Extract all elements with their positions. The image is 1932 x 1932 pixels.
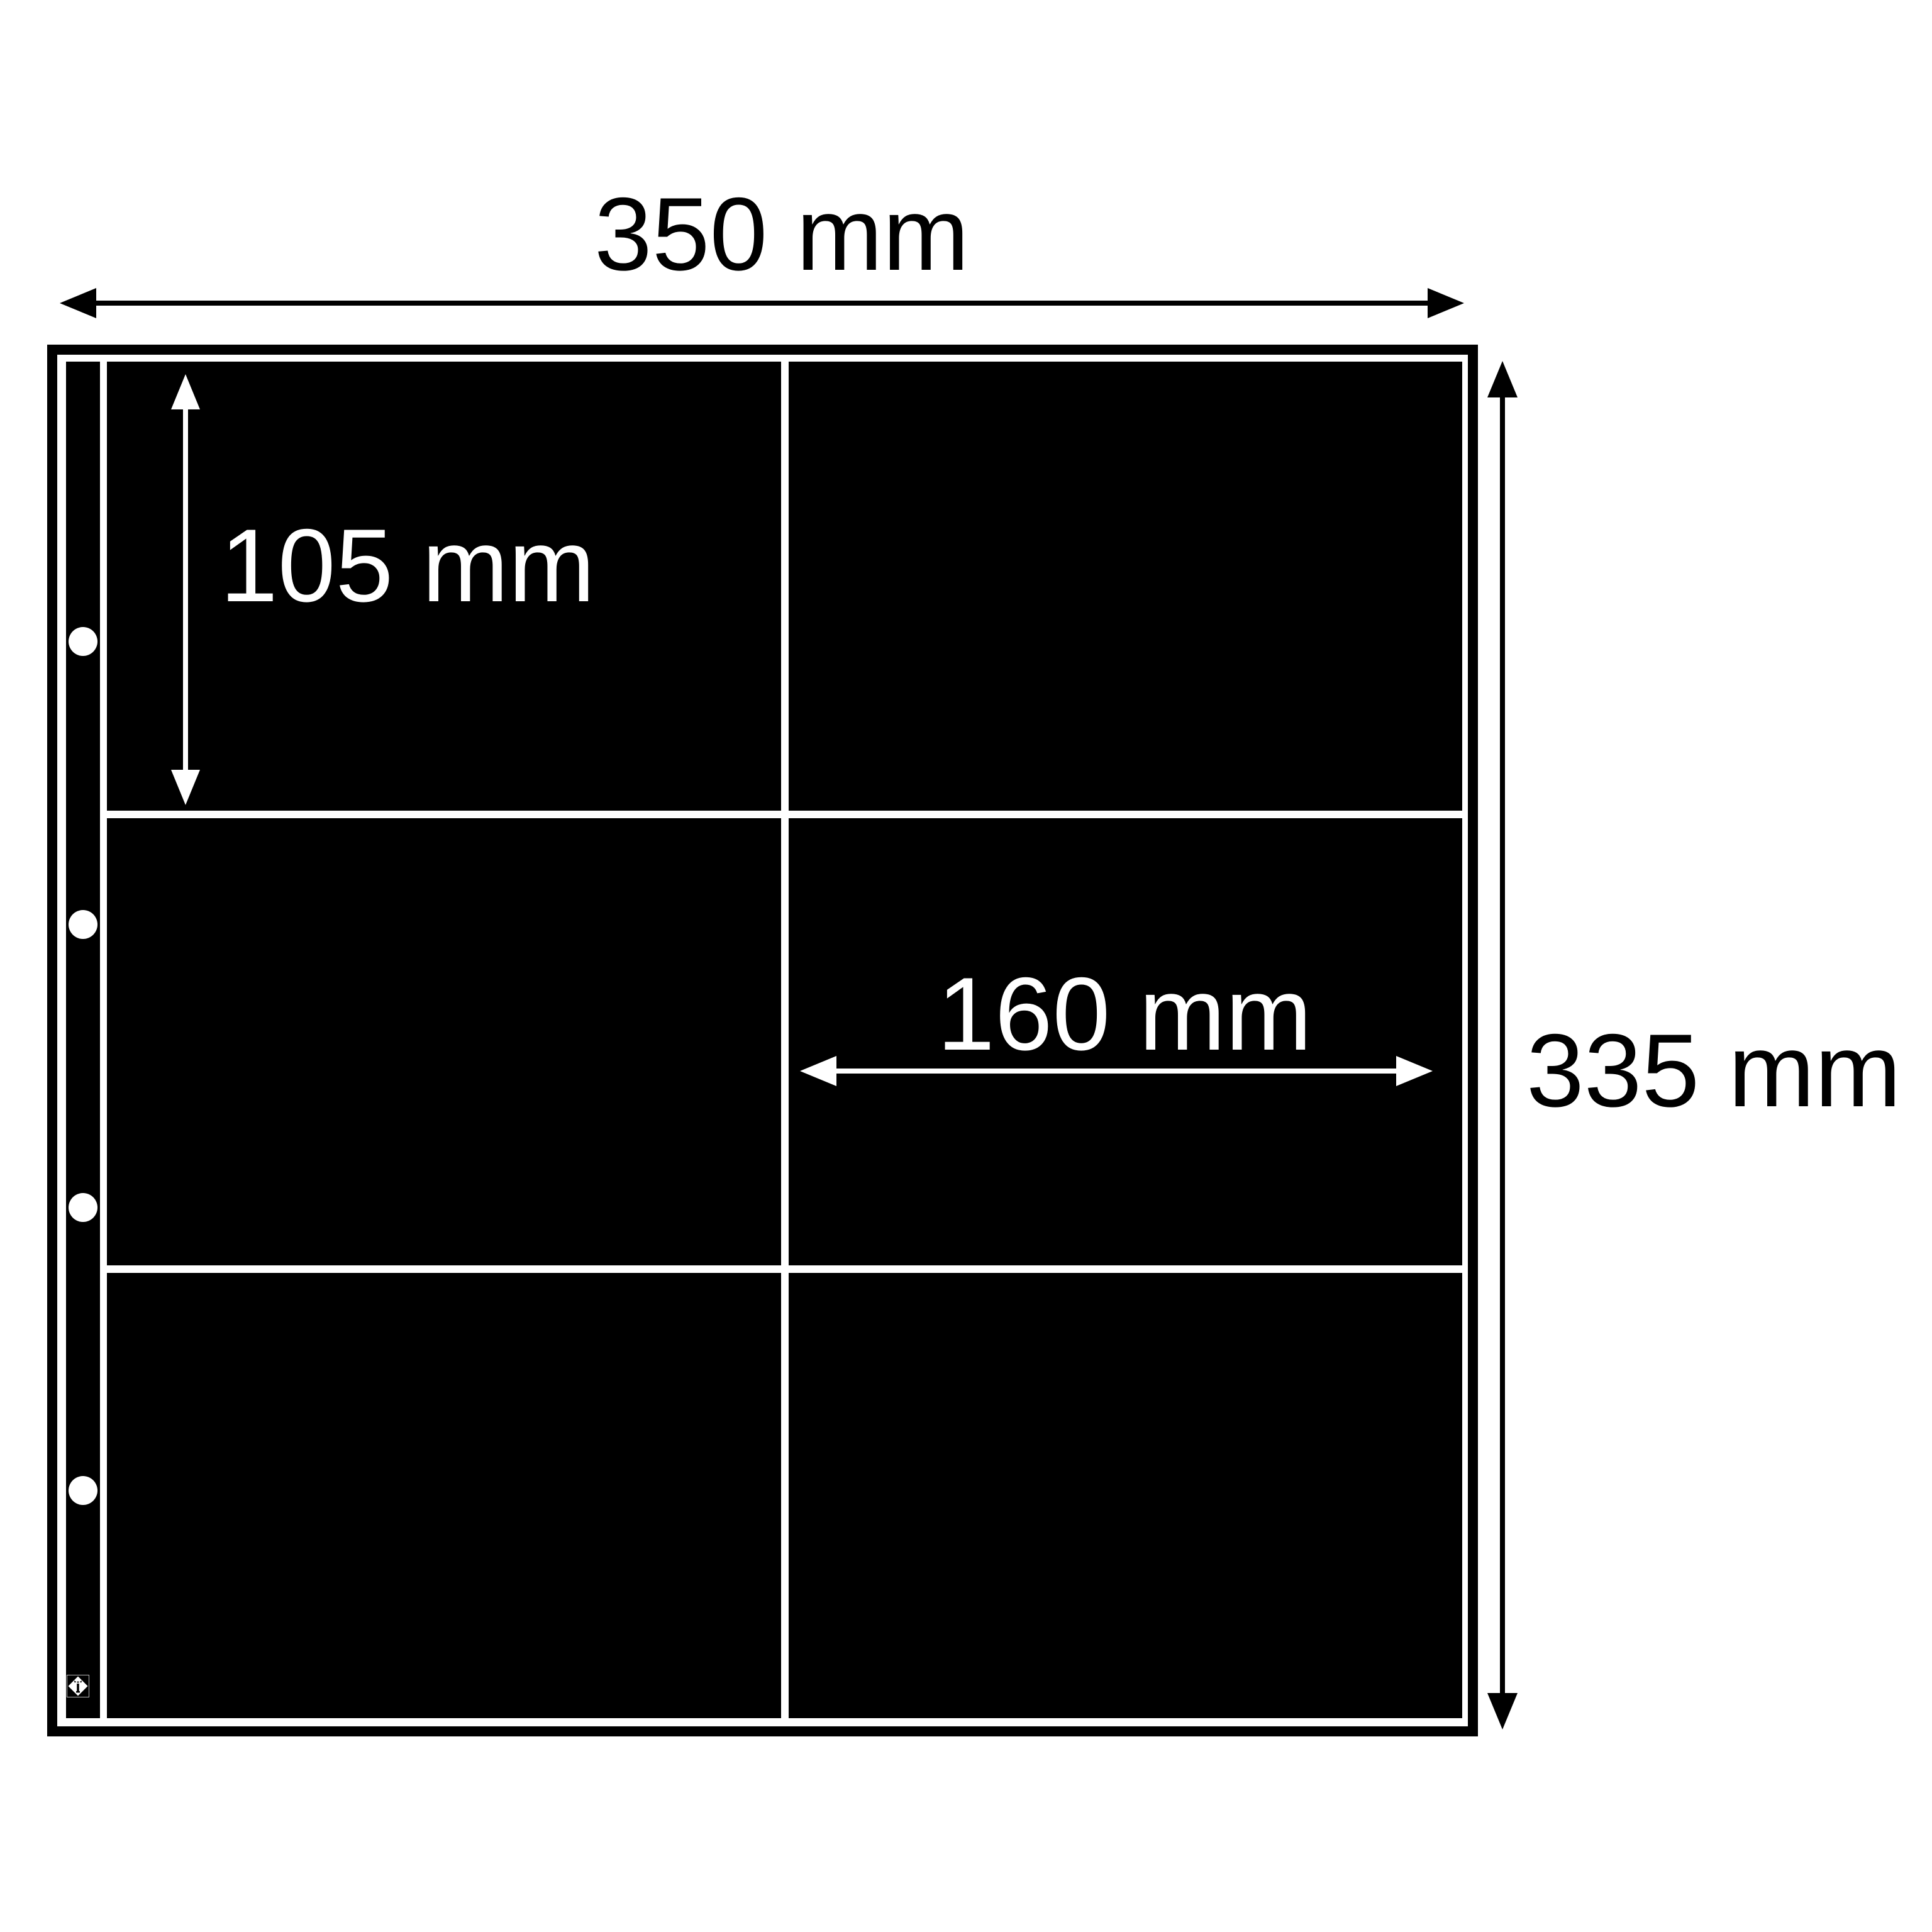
pocket-width-label: 160 mm bbox=[937, 962, 1312, 1066]
arrow-left-head-icon bbox=[800, 1056, 836, 1086]
sheet-width-label: 350 mm bbox=[594, 182, 969, 286]
pocket bbox=[789, 1273, 1462, 1718]
arrow-up-head-icon bbox=[171, 374, 200, 409]
pocket-height-arrow-shaft bbox=[183, 406, 188, 774]
lighthouse-logo-icon bbox=[67, 1675, 89, 1697]
arrow-left-head-icon bbox=[60, 288, 96, 318]
binding-strip bbox=[66, 362, 100, 1718]
arrow-down-head-icon bbox=[171, 770, 200, 805]
arrow-up-head-icon bbox=[1487, 361, 1518, 397]
pocket bbox=[789, 362, 1462, 811]
pocket bbox=[107, 1273, 781, 1718]
arrow-right-head-icon bbox=[1428, 288, 1464, 318]
sheet-height-arrow-shaft bbox=[1500, 393, 1505, 1695]
sheet-height-label: 335 mm bbox=[1526, 1019, 1901, 1123]
arrow-right-head-icon bbox=[1396, 1056, 1433, 1086]
arrow-down-head-icon bbox=[1487, 1693, 1518, 1729]
sheet-dimension-diagram: 350 mm 335 mm 1 bbox=[0, 0, 1932, 1932]
binder-hole bbox=[69, 1193, 97, 1222]
pocket-height-label: 105 mm bbox=[220, 514, 595, 618]
binder-hole bbox=[69, 910, 97, 939]
binder-hole bbox=[69, 627, 97, 656]
sheet-width-arrow-shaft bbox=[94, 301, 1431, 306]
pocket bbox=[107, 818, 781, 1265]
binder-hole bbox=[69, 1476, 97, 1505]
